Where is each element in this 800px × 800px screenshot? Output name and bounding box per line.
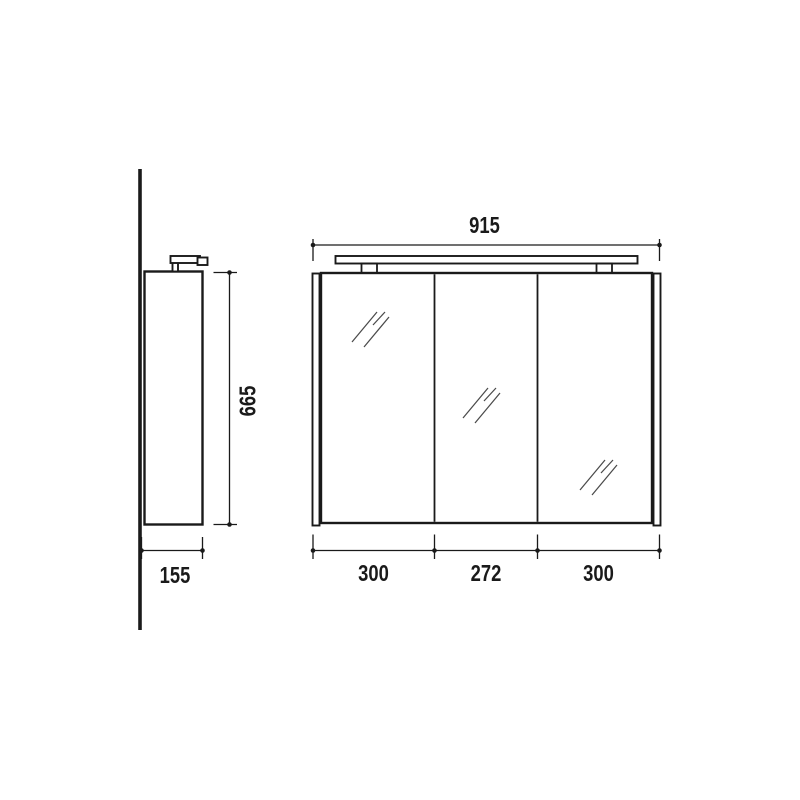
dim-height-label: 665 [236, 386, 261, 417]
side-panel-left [313, 274, 320, 526]
dim-depth: 155 [139, 537, 205, 589]
dim-door-right-label: 300 [583, 561, 614, 586]
dim-width: 915 [311, 213, 662, 261]
dim-dot [432, 548, 437, 553]
dim-depth-label: 155 [160, 563, 191, 588]
dim-door-center-label: 272 [471, 561, 502, 586]
light-bracket-left [362, 264, 378, 274]
dim-dot [535, 548, 540, 553]
side-view: 665 155 [139, 169, 261, 630]
side-panel-right [654, 274, 661, 526]
dim-dot [200, 548, 205, 553]
dim-dot [657, 548, 662, 553]
light-head-side [198, 258, 208, 266]
dim-height: 665 [214, 270, 262, 527]
technical-drawing-canvas: 665 155 [0, 0, 800, 800]
dim-dot [657, 243, 662, 248]
dim-width-label: 915 [469, 213, 500, 238]
dim-dot [227, 270, 232, 275]
light-bar-front [336, 256, 638, 264]
cabinet-side-profile [145, 272, 203, 525]
dim-dot [139, 548, 144, 553]
light-arm-side [171, 256, 201, 263]
light-bracket-right [597, 264, 613, 274]
dim-dot [227, 522, 232, 527]
drawing-svg: 665 155 [0, 0, 800, 800]
dim-dot [311, 243, 316, 248]
dim-door-left-label: 300 [358, 561, 389, 586]
dim-dot [311, 548, 316, 553]
front-view: 915 300 272 300 [311, 213, 662, 586]
dim-doors: 300 272 300 [311, 535, 662, 587]
